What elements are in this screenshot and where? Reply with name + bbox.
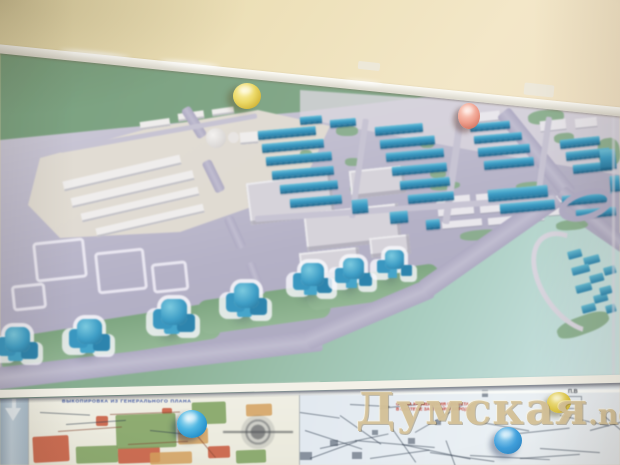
- photo-of-masterplan-posters: ВЫКОПИРОВКА ИЗ ГЕНЕРАЛЬНОГО ПЛАНА СХЕМА …: [0, 0, 620, 465]
- magnet-yellow-large: [233, 83, 261, 109]
- road: [202, 159, 226, 194]
- existing-building: [212, 107, 235, 117]
- green-patch: [336, 126, 358, 136]
- new-building-slab: [386, 148, 445, 162]
- map-line: [300, 412, 340, 419]
- district-footprint: [11, 282, 48, 311]
- map-line: [446, 440, 461, 465]
- map-line: [370, 450, 430, 459]
- cylindrical-building-small: [228, 132, 239, 143]
- district-footprint: [32, 237, 88, 282]
- new-building-slab: [262, 139, 325, 153]
- new-building-slab: [375, 123, 424, 136]
- new-building-slab: [258, 126, 317, 140]
- new-building-slab: [484, 157, 535, 170]
- existing-building: [240, 131, 259, 145]
- new-building-slab: [351, 199, 368, 214]
- plan-zone-tan: [150, 451, 192, 464]
- tower-cluster: [234, 283, 259, 308]
- plan-zone-green: [236, 449, 266, 463]
- watermark-suffix: .net: [588, 398, 620, 431]
- tower-cluster: [301, 263, 324, 286]
- magnet-pink: [458, 103, 480, 129]
- new-building-slab: [426, 219, 441, 230]
- plan-outline: [58, 427, 122, 432]
- paper-crease: [299, 392, 300, 465]
- tower-cluster: [5, 327, 30, 352]
- district-footprint: [94, 248, 148, 295]
- paper-tab: [358, 61, 381, 71]
- site-watermark: Думская.net: [356, 384, 620, 444]
- new-building-slab: [266, 151, 333, 166]
- map-line: [40, 412, 90, 416]
- new-building-slab: [300, 115, 323, 125]
- garage-row: [575, 117, 598, 128]
- watermark-text: Думская: [356, 384, 588, 435]
- cylindrical-building: [206, 128, 226, 148]
- plan-zone-red: [32, 435, 69, 463]
- plan-zone-green: [76, 445, 119, 463]
- poster-edge-line: [612, 110, 615, 383]
- map-mark: [330, 440, 338, 446]
- tower-cluster: [77, 319, 102, 344]
- magnet-blue-large: [177, 410, 207, 438]
- new-building-slab: [474, 132, 523, 144]
- map-line: [430, 452, 495, 462]
- tower-cluster: [385, 250, 404, 269]
- map-line: [540, 448, 600, 453]
- new-building-slab: [478, 143, 531, 156]
- map-mark: [300, 452, 312, 460]
- new-building-slab: [389, 210, 408, 224]
- tower-cluster: [161, 299, 187, 325]
- tower-cluster: [343, 258, 364, 279]
- district-footprint: [151, 260, 190, 294]
- map-mark: [352, 452, 362, 459]
- compass-rose: [241, 415, 275, 449]
- paper-crease: [28, 394, 29, 465]
- road: [223, 215, 246, 250]
- paper-tab: [523, 82, 554, 97]
